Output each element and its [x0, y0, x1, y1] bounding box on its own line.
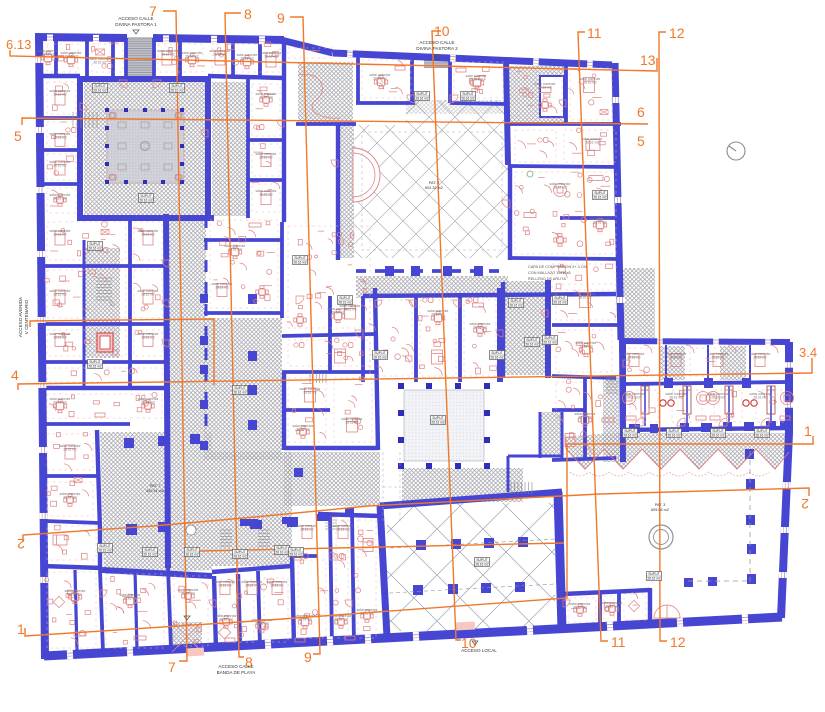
svg-text:28.16 m2: 28.16 m2: [538, 86, 552, 90]
svg-text:28.16 m2: 28.16 m2: [53, 197, 67, 201]
svg-text:28.16 m2: 28.16 m2: [647, 577, 661, 581]
svg-text:28.16 m2: 28.16 m2: [605, 605, 619, 609]
svg-text:28.16 m2: 28.16 m2: [255, 622, 269, 626]
svg-text:28.16 m2: 28.16 m2: [755, 434, 769, 438]
svg-text:28.16 m2: 28.16 m2: [275, 551, 289, 555]
svg-text:SUP.UT: SUP.UT: [668, 429, 679, 433]
svg-text:SUP.UT: SUP.UT: [624, 429, 635, 433]
svg-text:SUP.UT: SUP.UT: [491, 351, 502, 355]
svg-text:12: 12: [670, 634, 686, 650]
svg-text:28.16 m2: 28.16 m2: [753, 356, 767, 360]
svg-text:9: 9: [304, 649, 312, 665]
svg-text:SUP.UT: SUP.UT: [476, 558, 487, 562]
svg-text:28.16 m2: 28.16 m2: [415, 97, 429, 101]
svg-text:28.16 m2: 28.16 m2: [711, 434, 725, 438]
svg-text:28.16 m2: 28.16 m2: [753, 396, 767, 400]
svg-text:SUP.UT: SUP.UT: [171, 84, 182, 88]
svg-text:CON MALLAZO 15x15x5: CON MALLAZO 15x15x5: [528, 271, 571, 275]
svg-text:SUP.UT: SUP.UT: [234, 550, 245, 554]
svg-text:28.16 m2: 28.16 m2: [53, 336, 67, 340]
svg-text:28.16 m2: 28.16 m2: [573, 606, 587, 610]
svg-text:28.16 m2: 28.16 m2: [623, 434, 637, 438]
svg-text:28.16 m2: 28.16 m2: [141, 293, 155, 297]
svg-text:SUP.UT: SUP.UT: [544, 336, 555, 340]
svg-text:SUP.UT: SUP.UT: [144, 548, 155, 552]
svg-text:SUP.UT: SUP.UT: [554, 296, 565, 300]
svg-text:28.16 m2: 28.16 m2: [233, 555, 247, 559]
svg-text:28.16 m2: 28.16 m2: [373, 356, 387, 360]
svg-text:28.16 m2: 28.16 m2: [525, 343, 539, 347]
svg-text:28.16 m2: 28.16 m2: [585, 141, 599, 145]
svg-text:PAT. 2: PAT. 2: [429, 181, 440, 185]
svg-text:6.13: 6.13: [6, 37, 31, 52]
svg-text:5: 5: [14, 128, 22, 144]
svg-text:13: 13: [640, 52, 656, 68]
svg-text:11: 11: [611, 634, 626, 650]
svg-text:SUP.UT: SUP.UT: [94, 84, 105, 88]
svg-text:ACCESO AVENIDA: ACCESO AVENIDA: [18, 296, 23, 337]
svg-text:28.16 m2: 28.16 m2: [431, 421, 445, 425]
svg-text:SUP.UT: SUP.UT: [648, 572, 659, 576]
svg-text:7: 7: [168, 659, 176, 675]
svg-text:ACCESO LOCAL: ACCESO LOCAL: [461, 648, 497, 653]
svg-text:28.16 m2: 28.16 m2: [264, 55, 278, 59]
svg-text:28.16 m2: 28.16 m2: [461, 97, 475, 101]
svg-text:2: 2: [801, 496, 809, 512]
svg-text:DIVINA PASTORA 1: DIVINA PASTORA 1: [115, 22, 157, 27]
svg-text:SUP.UT: SUP.UT: [510, 299, 521, 303]
svg-text:28.16 m2: 28.16 m2: [475, 563, 489, 567]
svg-text:28.16 m2: 28.16 m2: [259, 193, 273, 197]
svg-text:10: 10: [434, 23, 450, 39]
svg-text:8: 8: [244, 6, 252, 22]
svg-text:28.16 m2: 28.16 m2: [300, 528, 314, 532]
svg-text:28.16 m2: 28.16 m2: [338, 301, 352, 305]
svg-text:9: 9: [277, 10, 285, 26]
svg-text:28.16 m2: 28.16 m2: [141, 233, 155, 237]
svg-text:28.16 m2: 28.16 m2: [469, 78, 483, 82]
svg-text:SUP.UT: SUP.UT: [294, 256, 305, 260]
svg-text:28.16 m2: 28.16 m2: [711, 356, 725, 360]
svg-text:28.16 m2: 28.16 m2: [667, 434, 681, 438]
svg-text:SUP.UT: SUP.UT: [234, 386, 245, 390]
svg-text:CAPA DE COMPRESION 5+ 4 CM: CAPA DE COMPRESION 5+ 4 CM: [528, 265, 587, 269]
svg-text:DIVINA PASTORA 2: DIVINA PASTORA 2: [416, 46, 458, 51]
svg-text:SUP.UT: SUP.UT: [99, 544, 110, 548]
svg-text:28.16 m2: 28.16 m2: [63, 448, 77, 452]
svg-text:6: 6: [637, 104, 645, 120]
svg-text:28.16 m2: 28.16 m2: [88, 247, 102, 251]
svg-text:28.16 m2: 28.16 m2: [93, 61, 107, 65]
svg-text:SUP.UT: SUP.UT: [416, 92, 427, 96]
svg-text:28.16 m2: 28.16 m2: [593, 221, 607, 225]
svg-text:28.16 m2: 28.16 m2: [583, 81, 597, 85]
svg-text:28.16 m2: 28.16 m2: [123, 597, 137, 601]
svg-text:PAT. 7: PAT. 7: [150, 484, 161, 488]
svg-text:28.16 m2: 28.16 m2: [219, 618, 233, 622]
svg-text:PAT. 3: PAT. 3: [655, 503, 666, 507]
svg-text:SUP.UT: SUP.UT: [594, 191, 605, 195]
svg-text:28.16 m2: 28.16 m2: [593, 196, 607, 200]
svg-text:5: 5: [637, 133, 645, 149]
svg-text:28.16 m2: 28.16 m2: [139, 199, 153, 203]
svg-text:4: 4: [11, 367, 19, 383]
svg-text:11: 11: [587, 25, 602, 41]
svg-text:ACCESO CALLE: ACCESO CALLE: [218, 664, 253, 669]
svg-text:28.16 m2: 28.16 m2: [343, 308, 357, 312]
svg-text:28.16 m2: 28.16 m2: [543, 341, 557, 345]
svg-text:SUP.UT: SUP.UT: [462, 92, 473, 96]
svg-text:SUP.UT: SUP.UT: [374, 351, 385, 355]
svg-text:28.16 m2: 28.16 m2: [240, 57, 254, 61]
svg-text:28.16 m2: 28.16 m2: [143, 553, 157, 557]
svg-text:28.16 m2: 28.16 m2: [218, 584, 232, 588]
svg-text:28.16 m2: 28.16 m2: [473, 326, 487, 330]
svg-text:28.16 m2: 28.16 m2: [336, 528, 350, 532]
svg-text:28.16 m2: 28.16 m2: [185, 55, 199, 59]
svg-text:28.16 m2: 28.16 m2: [53, 233, 67, 237]
svg-text:28.16 m2: 28.16 m2: [711, 396, 725, 400]
svg-text:28.16 m2: 28.16 m2: [233, 391, 247, 395]
svg-text:SUP.UT: SUP.UT: [290, 548, 301, 552]
svg-text:28.16 m2: 28.16 m2: [98, 549, 112, 553]
svg-text:1: 1: [804, 423, 812, 439]
svg-text:SUP.UT: SUP.UT: [186, 548, 197, 552]
svg-text:28.16 m2: 28.16 m2: [141, 401, 155, 405]
svg-text:SUP.UT: SUP.UT: [526, 338, 537, 342]
svg-text:V CENTENARIO: V CENTENARIO: [24, 299, 29, 334]
svg-text:28.16 m2: 28.16 m2: [345, 421, 359, 425]
svg-text:605.04 m2: 605.04 m2: [651, 508, 669, 512]
svg-text:28.16 m2: 28.16 m2: [181, 592, 195, 596]
svg-text:28.16 m2: 28.16 m2: [303, 391, 317, 395]
svg-text:SUP.UT: SUP.UT: [432, 416, 443, 420]
svg-text:28.16 m2: 28.16 m2: [627, 396, 641, 400]
svg-text:RELLENO DE ARLITA: RELLENO DE ARLITA: [528, 277, 566, 281]
svg-text:28.16 m2: 28.16 m2: [53, 293, 67, 297]
svg-text:28.16 m2: 28.16 m2: [185, 553, 199, 557]
svg-text:28.16 m2: 28.16 m2: [93, 89, 107, 93]
svg-text:28.16 m2: 28.16 m2: [579, 345, 593, 349]
svg-text:28.16 m2: 28.16 m2: [53, 136, 67, 140]
svg-text:1: 1: [17, 621, 25, 637]
svg-text:SUP.UT: SUP.UT: [140, 194, 151, 198]
svg-text:28.16 m2: 28.16 m2: [215, 286, 229, 290]
svg-text:28.16 m2: 28.16 m2: [627, 356, 641, 360]
svg-text:28.16 m2: 28.16 m2: [259, 156, 273, 160]
svg-text:28.16 m2: 28.16 m2: [88, 365, 102, 369]
svg-text:28.16 m2: 28.16 m2: [553, 186, 567, 190]
svg-text:28.16 m2: 28.16 m2: [669, 356, 683, 360]
svg-text:28.16 m2: 28.16 m2: [170, 89, 184, 93]
svg-text:28.16 m2: 28.16 m2: [53, 401, 67, 405]
svg-text:3.4: 3.4: [799, 345, 817, 360]
svg-text:28.16 m2: 28.16 m2: [53, 93, 67, 97]
svg-text:28.16 m2: 28.16 m2: [68, 593, 82, 597]
svg-text:28.16 m2: 28.16 m2: [63, 496, 77, 500]
svg-text:12: 12: [669, 25, 685, 41]
svg-text:ACCESO CALLE: ACCESO CALLE: [419, 40, 454, 45]
svg-text:28.16 m2: 28.16 m2: [334, 618, 348, 622]
svg-text:28.16 m2: 28.16 m2: [41, 53, 55, 57]
svg-text:28.16 m2: 28.16 m2: [293, 261, 307, 265]
svg-text:28.16 m2: 28.16 m2: [553, 301, 567, 305]
svg-text:28.16 m2: 28.16 m2: [373, 77, 387, 81]
svg-text:SUP.UT: SUP.UT: [89, 242, 100, 246]
svg-text:28.16 m2: 28.16 m2: [578, 296, 592, 300]
svg-text:28.16 m2: 28.16 m2: [490, 356, 504, 360]
svg-text:28.16 m2: 28.16 m2: [509, 304, 523, 308]
svg-text:SUP.UT: SUP.UT: [339, 296, 350, 300]
svg-text:342.91 m2: 342.91 m2: [146, 489, 164, 493]
svg-text:28.16 m2: 28.16 m2: [259, 96, 273, 100]
svg-text:28.16 m2: 28.16 m2: [245, 584, 259, 588]
svg-text:602.32 m2: 602.32 m2: [425, 186, 443, 190]
svg-text:28.16 m2: 28.16 m2: [141, 336, 155, 340]
svg-text:28.16 m2: 28.16 m2: [270, 584, 284, 588]
svg-text:28.16 m2: 28.16 m2: [289, 553, 303, 557]
svg-text:28.16 m2: 28.16 m2: [53, 164, 67, 168]
svg-text:28.16 m2: 28.16 m2: [578, 416, 592, 420]
svg-text:2: 2: [17, 536, 25, 552]
svg-text:ACCESO CALLE: ACCESO CALLE: [118, 16, 153, 21]
svg-text:SUP.UT: SUP.UT: [756, 429, 767, 433]
svg-text:SUP.UT: SUP.UT: [712, 429, 723, 433]
svg-text:28.16 m2: 28.16 m2: [213, 53, 227, 57]
svg-text:28.16 m2: 28.16 m2: [669, 396, 683, 400]
svg-text:28.16 m2: 28.16 m2: [161, 53, 175, 57]
svg-text:28.16 m2: 28.16 m2: [296, 428, 310, 432]
svg-text:SUP.UT: SUP.UT: [276, 546, 287, 550]
svg-text:SUP.UT: SUP.UT: [89, 360, 100, 364]
svg-text:BANDA DE PLAYA: BANDA DE PLAYA: [217, 670, 257, 675]
